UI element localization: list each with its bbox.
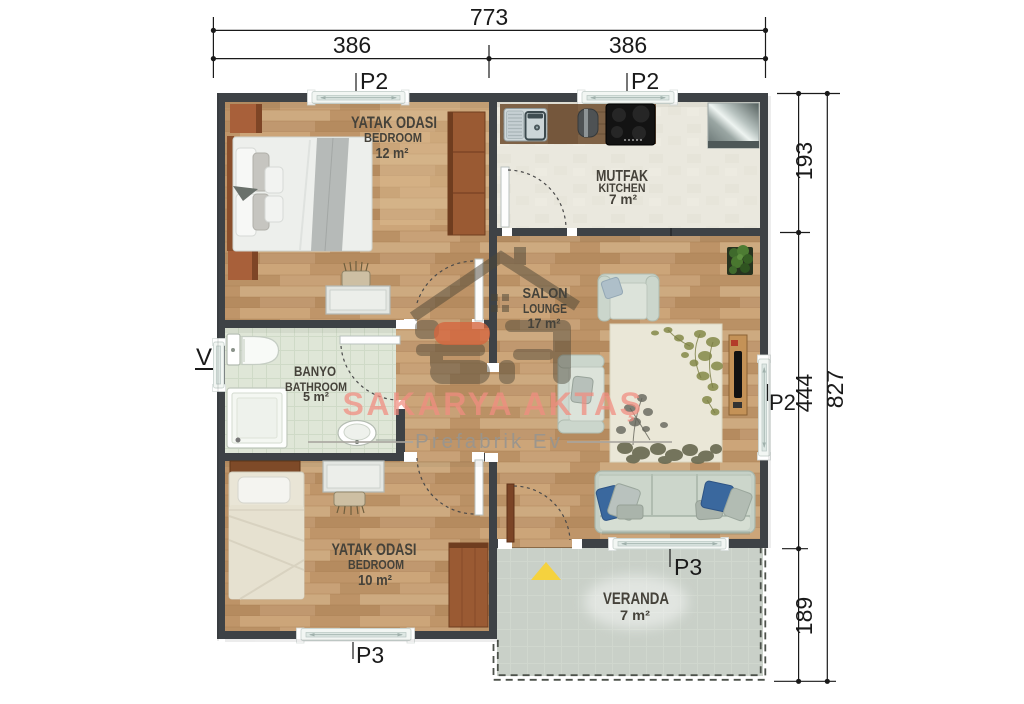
svg-text:5 m²: 5 m² bbox=[303, 390, 329, 404]
svg-text:SAKARYA AKTAŞ: SAKARYA AKTAŞ bbox=[343, 386, 644, 422]
svg-text:P3: P3 bbox=[674, 554, 702, 580]
svg-text:7 m²: 7 m² bbox=[609, 191, 637, 207]
svg-text:LOUNGE: LOUNGE bbox=[523, 302, 567, 316]
svg-text:773: 773 bbox=[470, 4, 508, 30]
svg-text:386: 386 bbox=[609, 32, 647, 58]
svg-text:YATAK ODASI: YATAK ODASI bbox=[351, 113, 437, 132]
svg-text:827: 827 bbox=[822, 370, 848, 408]
svg-text:12 m²: 12 m² bbox=[376, 146, 409, 162]
svg-text:P2: P2 bbox=[631, 68, 659, 94]
svg-text:SALON: SALON bbox=[523, 285, 568, 302]
svg-text:VERANDA: VERANDA bbox=[603, 590, 669, 608]
svg-text:17 m²: 17 m² bbox=[528, 315, 561, 331]
svg-text:YATAK ODASI: YATAK ODASI bbox=[332, 540, 417, 559]
svg-text:10 m²: 10 m² bbox=[358, 573, 392, 589]
svg-text:189: 189 bbox=[791, 597, 817, 635]
svg-text:V: V bbox=[196, 344, 212, 371]
svg-text:BEDROOM: BEDROOM bbox=[348, 558, 404, 572]
svg-text:P3: P3 bbox=[356, 642, 384, 668]
svg-text:386: 386 bbox=[333, 32, 371, 58]
svg-text:193: 193 bbox=[791, 142, 817, 180]
svg-text:P2: P2 bbox=[769, 390, 796, 415]
svg-text:7 m²: 7 m² bbox=[620, 607, 650, 623]
svg-text:P2: P2 bbox=[360, 68, 388, 94]
svg-text:BEDROOM: BEDROOM bbox=[364, 131, 422, 145]
svg-text:BANYO: BANYO bbox=[294, 363, 336, 379]
svg-text:Prefabrik Ev: Prefabrik Ev bbox=[415, 430, 563, 453]
